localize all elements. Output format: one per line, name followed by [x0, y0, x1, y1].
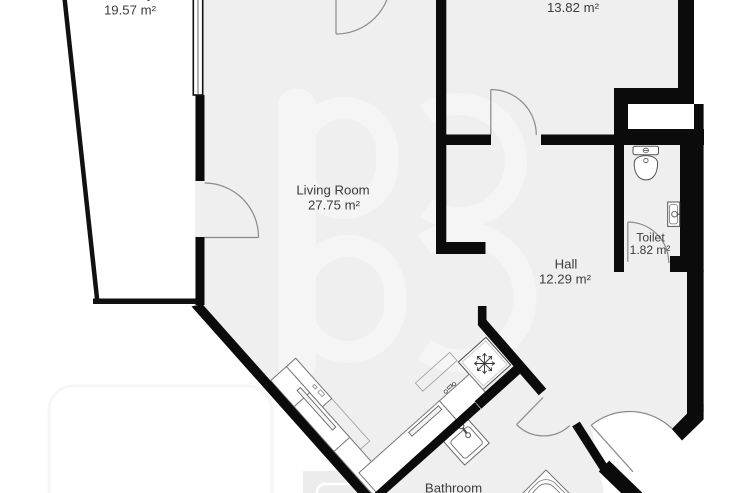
- svg-text:19.57 m²: 19.57 m²: [104, 3, 157, 18]
- svg-text:12.29 m²: 12.29 m²: [539, 271, 592, 286]
- svg-text:27.75 m²: 27.75 m²: [308, 198, 361, 213]
- svg-text:Hall: Hall: [555, 256, 578, 271]
- svg-text:Balcony: Balcony: [107, 0, 154, 2]
- svg-text:13.82 m²: 13.82 m²: [547, 0, 600, 15]
- svg-text:Bathroom: Bathroom: [425, 481, 482, 493]
- svg-text:1.82 m²: 1.82 m²: [630, 243, 671, 257]
- svg-text:Living Room: Living Room: [296, 182, 369, 197]
